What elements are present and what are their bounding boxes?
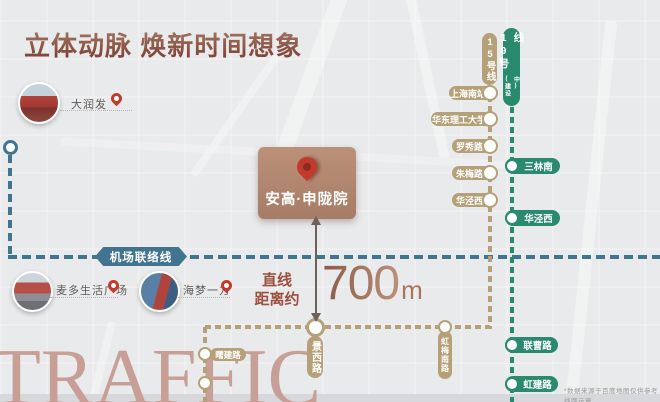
station-dot [505, 159, 519, 173]
station-label: 联曹路 [523, 338, 552, 352]
line19-status: (建设中) [503, 76, 521, 106]
poi-photo-maiduo [12, 271, 53, 312]
poi-photo-haimeng [139, 271, 180, 312]
station-label: 虹建路 [523, 377, 552, 391]
line19-label: 19号线 [497, 32, 527, 75]
station-dot [482, 165, 498, 181]
line15-label: 15号线 [483, 37, 497, 82]
station-label: 上海南站 [450, 87, 486, 100]
station-dot [482, 138, 498, 154]
station-label: 景西路 [308, 341, 323, 374]
station-dot [505, 377, 519, 391]
station-label: 曙建路 [215, 349, 241, 361]
poi-dotted-line [60, 110, 132, 111]
station-label: 虹梅南路 [440, 337, 451, 373]
station-label: 华泾西 [524, 211, 553, 225]
watermark-text: TRAFFIC [0, 338, 321, 402]
distance-value: 700 m [322, 256, 423, 311]
airport-line-badge: 机场联络线 [95, 247, 187, 266]
poi-photo-darunfa [18, 82, 60, 124]
arrow-down-icon [311, 313, 321, 322]
station-dot [505, 338, 519, 352]
property-name: 安高·申陇院 [258, 188, 356, 209]
station-label: 华东理工大学 [432, 113, 486, 126]
distance-label: 直线 距离约 [250, 271, 304, 309]
station-dot [198, 347, 212, 361]
station-dot [482, 192, 498, 208]
distance-label-line2: 距离约 [250, 290, 304, 309]
airport-line-vertical [8, 155, 12, 257]
distance-unit: m [401, 275, 423, 306]
property-card: 安高·申陇院 [258, 147, 356, 219]
distance-label-line1: 直线 [250, 271, 304, 290]
station-label: 华泾西 [456, 194, 483, 207]
station-label: 罗秀路 [456, 140, 483, 153]
poi-dotted-line [178, 297, 230, 298]
traffic-map-poster: TRAFFIC 立体动脉 焕新时间想象 机场联络线 15号线 上海南站 华东理工… [0, 0, 660, 402]
disclaimer-text: *数据来源于百度地图仅供参考线路示意 [564, 385, 660, 402]
airport-line-terminus-icon [3, 140, 18, 155]
station-label: 朱梅路 [456, 167, 483, 180]
poi-dotted-line [50, 297, 118, 298]
station-pill: 虹梅南路 [438, 331, 452, 379]
station-dot [482, 85, 498, 101]
line15-cap: 15号线 [482, 33, 497, 85]
line19-vertical [510, 107, 514, 402]
station-pill: 曙建路 [210, 348, 246, 361]
line19-cap: 19号线 (建设中) [503, 28, 520, 106]
station-dot [198, 376, 212, 390]
station-label: 三林南 [524, 159, 553, 173]
station-dot [438, 320, 452, 334]
line15-branch-vertical [203, 327, 207, 402]
page-title: 立体动脉 焕新时间想象 [24, 26, 302, 63]
property-pin-icon [293, 153, 321, 181]
station-pill: 景西路 [307, 336, 323, 378]
station-dot [482, 111, 498, 127]
distance-number: 700 [322, 256, 399, 311]
station-dot [505, 211, 519, 225]
distance-arrow-line [315, 224, 317, 314]
